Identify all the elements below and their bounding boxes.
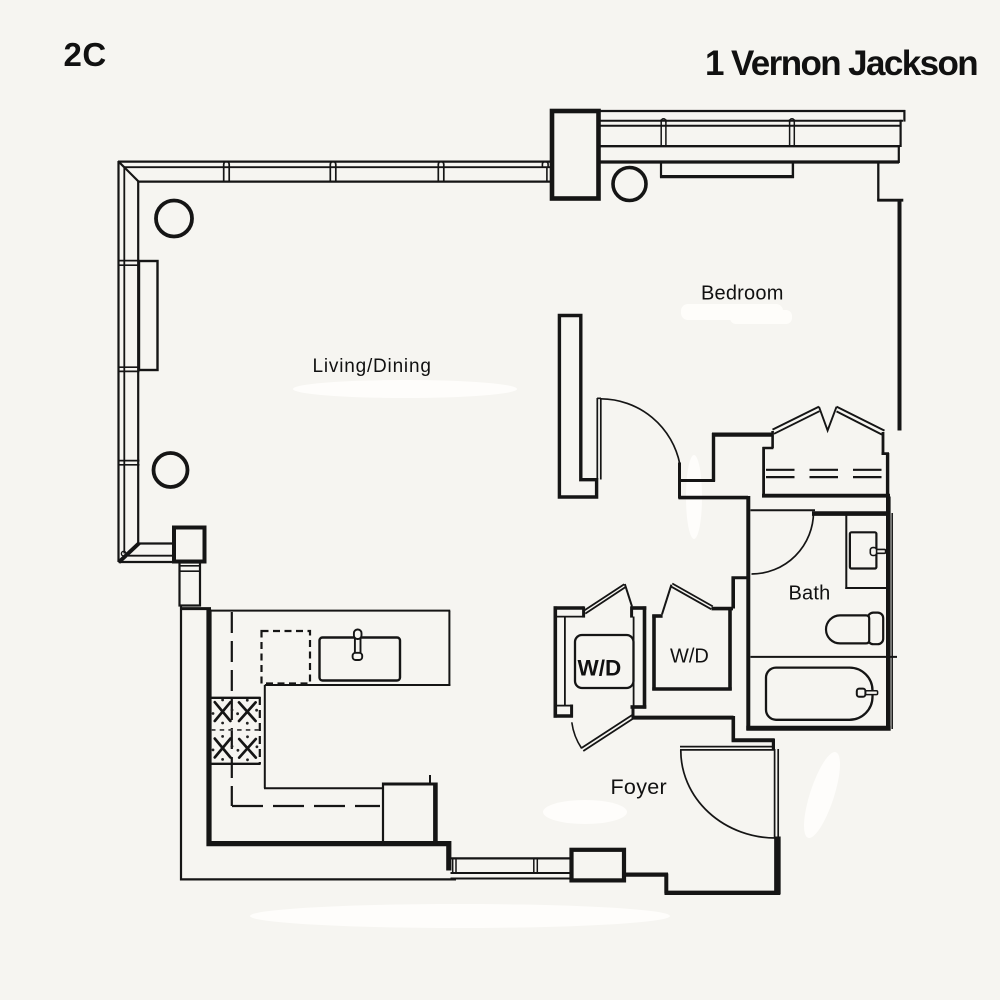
svg-text:Bath: Bath — [789, 583, 831, 605]
svg-text:W/D: W/D — [578, 656, 622, 681]
svg-text:2C: 2C — [64, 36, 107, 73]
svg-text:1 Vernon Jackson: 1 Vernon Jackson — [705, 44, 977, 83]
svg-text:Living/Dining: Living/Dining — [313, 356, 432, 377]
svg-text:Bedroom: Bedroom — [701, 283, 784, 305]
svg-text:Foyer: Foyer — [611, 775, 667, 799]
svg-text:W/D: W/D — [670, 646, 709, 668]
